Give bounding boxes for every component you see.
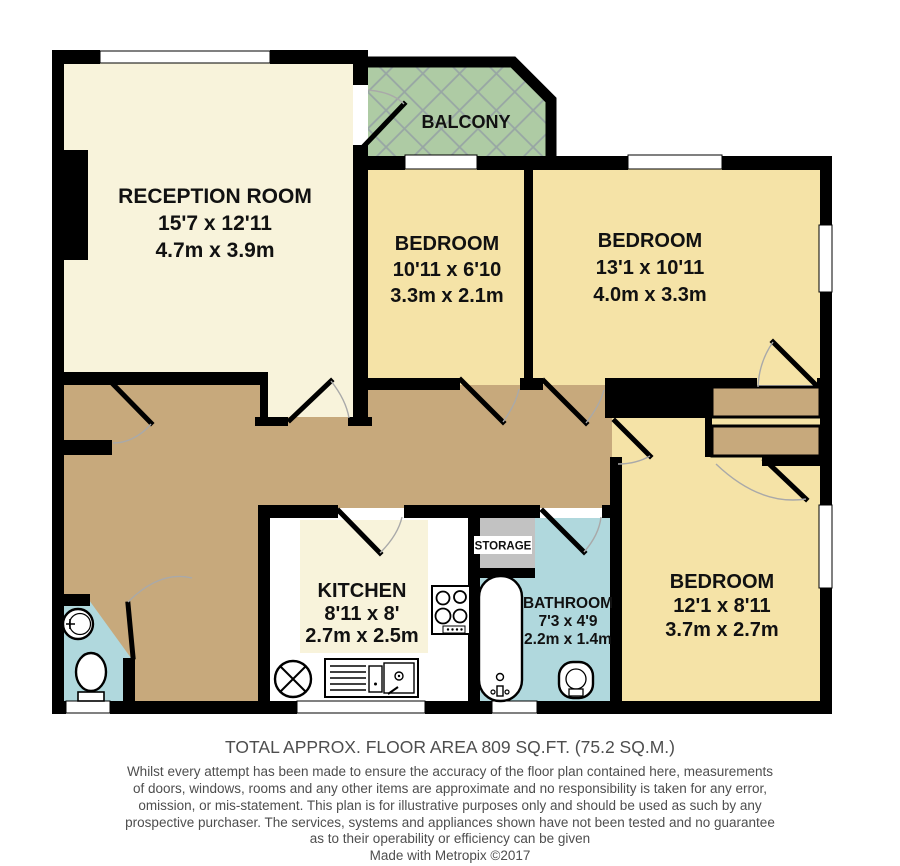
bedroom1-name: BEDROOM <box>395 233 499 255</box>
wall-bottom-d <box>537 701 832 714</box>
window-balcony-french <box>405 155 477 169</box>
window-bathroom-bottom <box>492 701 537 713</box>
bathroom-name: BATHROOM <box>523 595 613 612</box>
wall-junction <box>605 390 712 418</box>
bathroom-imperial: 7'3 x 4'9 <box>538 613 597 630</box>
disclaimer-line-3: omission, or mis-statement. This plan is… <box>138 798 762 813</box>
wall-entry-stub <box>52 440 112 455</box>
hob <box>432 586 470 634</box>
bedroom2-metric: 4.0m x 3.3m <box>593 284 706 306</box>
bedroom3-imperial: 12'1 x 8'11 <box>673 595 770 617</box>
wall-right-lower <box>820 588 832 714</box>
toilet-bathroom <box>559 662 593 698</box>
bedroom2-name: BEDROOM <box>598 230 702 252</box>
wall-reception-ext-stub-r <box>348 417 372 426</box>
bedroom1-label: BEDROOM 10'11 x 6'10 3.3m x 2.1m <box>390 233 503 307</box>
wall-wc-right <box>123 658 135 701</box>
reception-room-imperial: 15'7 x 12'11 <box>158 212 272 235</box>
window-reception-top <box>100 51 270 63</box>
disclaimer-line-1: Whilst every attempt has been made to en… <box>127 764 773 779</box>
window-bedroom3-right <box>819 505 832 588</box>
window-kitchen-bottom <box>297 701 425 713</box>
storage-name: STORAGE <box>475 541 532 553</box>
bedroom2-label: BEDROOM 13'1 x 10'11 4.0m x 3.3m <box>593 230 706 306</box>
bedroom3-metric: 3.7m x 2.7m <box>665 619 778 641</box>
wall-kitchen-left <box>258 505 270 701</box>
toilet-wc <box>76 653 106 701</box>
kitchen-metric: 2.7m x 2.5m <box>305 625 418 647</box>
bathtub <box>479 576 522 701</box>
bedroom3-label: BEDROOM 12'1 x 8'11 3.7m x 2.7m <box>665 571 778 641</box>
floor-plan-page: RECEPTION ROOM 15'7 x 12'11 4.7m x 3.9m … <box>0 0 900 866</box>
wash-basin-wc <box>63 609 93 639</box>
kitchen-sink <box>325 659 418 697</box>
reception-room-metric: 4.7m x 3.9m <box>155 239 274 262</box>
opening-balcony <box>353 85 368 145</box>
wall-bedrooms-top-b <box>477 156 628 170</box>
disclaimer-line-2: of doors, windows, rooms and any other i… <box>133 781 767 796</box>
wall-right-mid <box>820 292 832 505</box>
footer: TOTAL APPROX. FLOOR AREA 809 SQ.FT. (75.… <box>125 737 775 863</box>
wall-bottom-b <box>110 701 297 714</box>
wall-bedrooms-bottom-b <box>520 378 543 390</box>
window-bedroom2-right <box>819 225 832 292</box>
chimney-breast <box>64 150 88 260</box>
cupboard-1 <box>712 387 820 417</box>
wall-right-upper <box>820 156 832 225</box>
wall-bedroom-divider <box>524 163 533 378</box>
bathroom-metric: 2.2m x 1.4m <box>524 631 612 648</box>
window-wc-bottom <box>66 701 110 713</box>
wall-reception-right <box>353 145 368 426</box>
kitchen-imperial: 8'11 x 8' <box>324 603 399 625</box>
disclaimer-line-5: as to their operability or efficiency ca… <box>310 831 590 846</box>
window-bedroom2-top <box>628 155 722 169</box>
washing-machine <box>275 661 311 697</box>
bedroom3-name: BEDROOM <box>670 571 774 593</box>
wall-reception-ext-stub-l <box>255 417 288 426</box>
metropix-credit: Made with Metropix ©2017 <box>370 848 531 863</box>
wall-bathroom-right <box>610 457 622 701</box>
cupboard-2 <box>712 426 820 456</box>
wall-top-a <box>52 50 100 64</box>
wall-wc-top <box>52 594 90 606</box>
wall-bedrooms-top-c <box>722 156 824 170</box>
floor-plan-canvas: RECEPTION ROOM 15'7 x 12'11 4.7m x 3.9m … <box>0 0 900 866</box>
bedroom1-imperial: 10'11 x 6'10 <box>393 259 502 281</box>
balcony-label: BALCONY <box>422 112 511 132</box>
wall-bedrooms-bottom-a <box>368 378 460 390</box>
wall-bottom-c <box>425 701 492 714</box>
disclaimer-line-4: prospective purchaser. The services, sys… <box>125 815 775 830</box>
bedroom1-metric: 3.3m x 2.1m <box>390 285 503 307</box>
storage-label: STORAGE <box>474 536 532 554</box>
bedroom2-imperial: 13'1 x 10'11 <box>596 257 705 279</box>
wall-bedrooms-top-a <box>368 156 405 170</box>
wall-bottom-a <box>52 701 66 714</box>
reception-room-name: RECEPTION ROOM <box>118 185 312 208</box>
wall-reception-bottom <box>52 372 268 385</box>
total-floor-area: TOTAL APPROX. FLOOR AREA 809 SQ.FT. (75.… <box>225 737 675 757</box>
kitchen-name: KITCHEN <box>318 580 407 602</box>
